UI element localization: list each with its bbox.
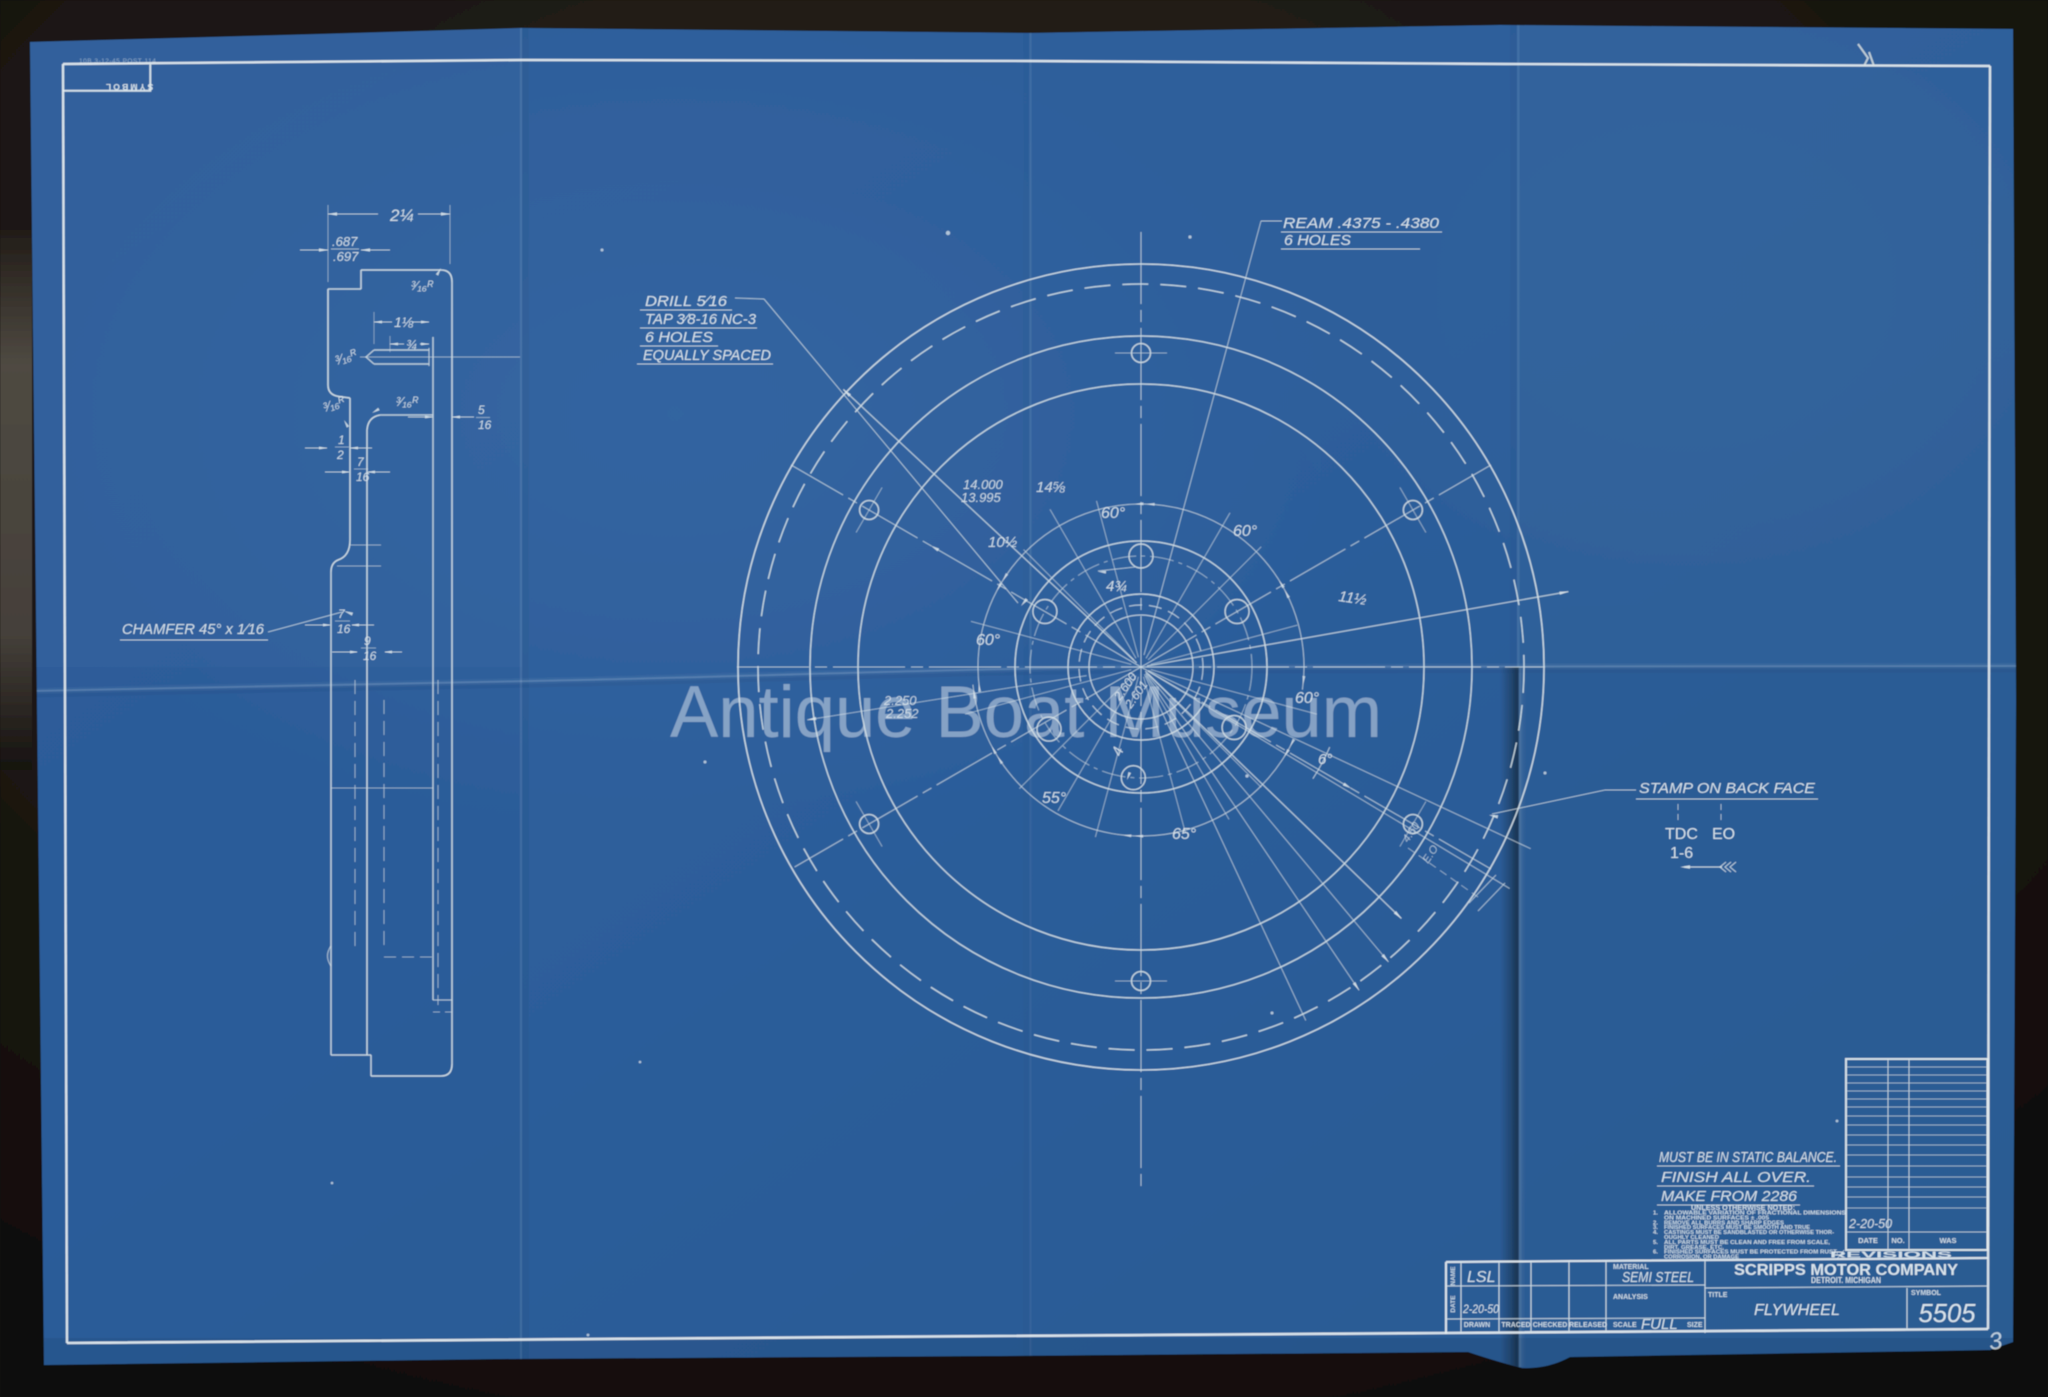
svg-text:60°: 60° [976,632,1001,649]
svg-text:6°: 6° [1318,751,1332,768]
svg-text:1.: 1. [1653,1211,1658,1217]
svg-text:STAMP ON BACK FACE: STAMP ON BACK FACE [1639,780,1816,797]
svg-text:NO.: NO. [1891,1236,1904,1245]
svg-text:14⅝: 14⅝ [1036,479,1066,496]
svg-text:DRILL 5∕16: DRILL 5∕16 [645,293,728,310]
svg-text:FINISH ALL OVER.: FINISH ALL OVER. [1661,1169,1811,1186]
svg-text:.687: .687 [332,234,358,249]
svg-text:60°: 60° [1233,523,1258,540]
svg-text:10½: 10½ [988,534,1018,551]
svg-text:³∕₁₆ᴿ: ³∕₁₆ᴿ [396,394,419,409]
svg-text:DETROIT. MICHIGAN: DETROIT. MICHIGAN [1811,1276,1881,1285]
svg-text:WAS: WAS [1939,1236,1956,1245]
svg-text:13.995: 13.995 [961,490,1002,505]
svg-text:CHAMFER 45° x 1∕16: CHAMFER 45° x 1∕16 [122,621,265,638]
svg-text:4.: 4. [1653,1230,1658,1236]
svg-text:1: 1 [338,433,345,447]
svg-text:FLYWHEEL: FLYWHEEL [1754,1302,1840,1319]
svg-text:Antique Boat Museum: Antique Boat Museum [670,672,1382,753]
svg-text:9: 9 [364,634,371,648]
svg-text:³∕₁₆ᴿ: ³∕₁₆ᴿ [411,278,434,293]
svg-text:60°: 60° [1295,690,1320,707]
svg-text:65°: 65° [1172,826,1197,843]
svg-text:EQUALLY SPACED: EQUALLY SPACED [643,347,771,364]
svg-text:6 HOLES: 6 HOLES [645,329,713,346]
svg-text:¾: ¾ [406,337,417,352]
svg-text:RELEASED: RELEASED [1569,1322,1607,1329]
svg-text:2: 2 [336,448,344,462]
svg-text:16: 16 [478,418,492,432]
svg-text:DATE: DATE [1858,1236,1878,1245]
svg-text:DATE: DATE [1450,1295,1457,1313]
svg-text:ANALYSIS: ANALYSIS [1613,1294,1648,1301]
svg-text:2.252: 2.252 [885,706,919,721]
svg-text:EO: EO [1712,826,1735,843]
svg-text:6 HOLES: 6 HOLES [1284,232,1351,249]
svg-text:NAME: NAME [1450,1266,1457,1286]
svg-text:10B 3-12-45 POST 114: 10B 3-12-45 POST 114 [79,58,156,65]
svg-text:16: 16 [363,649,377,663]
svg-text:TRACED: TRACED [1501,1322,1530,1329]
svg-text:MUST BE IN STATIC BALANCE.: MUST BE IN STATIC BALANCE. [1659,1149,1837,1166]
svg-text:2-20-50: 2-20-50 [1848,1217,1892,1231]
svg-text:TAP 3∕8-16 NC-3: TAP 3∕8-16 NC-3 [645,311,757,328]
svg-text:1-6: 1-6 [1670,845,1693,862]
svg-text:4¾: 4¾ [1106,578,1127,595]
svg-text:DRAWN: DRAWN [1464,1322,1490,1329]
svg-text:16: 16 [356,470,370,484]
svg-text:FULL: FULL [1641,1316,1678,1333]
svg-text:5.: 5. [1653,1240,1658,1246]
svg-text:SCALE: SCALE [1613,1322,1637,1329]
svg-text:5: 5 [478,403,485,417]
svg-text:60°: 60° [1101,505,1126,522]
svg-text:TITLE: TITLE [1708,1292,1728,1299]
svg-text:.697: .697 [333,249,359,264]
svg-text:2¼: 2¼ [389,206,414,225]
svg-text:TDC: TDC [1665,826,1698,843]
svg-text:16: 16 [337,622,351,636]
svg-text:2-20-50: 2-20-50 [1462,1302,1499,1316]
svg-text:SYMBOL: SYMBOL [104,82,154,92]
svg-text:LSL: LSL [1467,1269,1495,1286]
svg-text:5505: 5505 [1919,1298,1977,1328]
svg-text:CHECKED: CHECKED [1533,1322,1568,1329]
svg-text:SYMBOL: SYMBOL [1911,1290,1942,1297]
svg-text:SIZE: SIZE [1687,1322,1703,1329]
svg-text:6.: 6. [1653,1250,1658,1256]
svg-text:55°: 55° [1042,790,1067,807]
svg-text:SEMI STEEL: SEMI STEEL [1622,1269,1694,1286]
svg-text:1⅛: 1⅛ [394,314,414,330]
svg-text:REAM .4375 - .4380: REAM .4375 - .4380 [1283,215,1440,232]
